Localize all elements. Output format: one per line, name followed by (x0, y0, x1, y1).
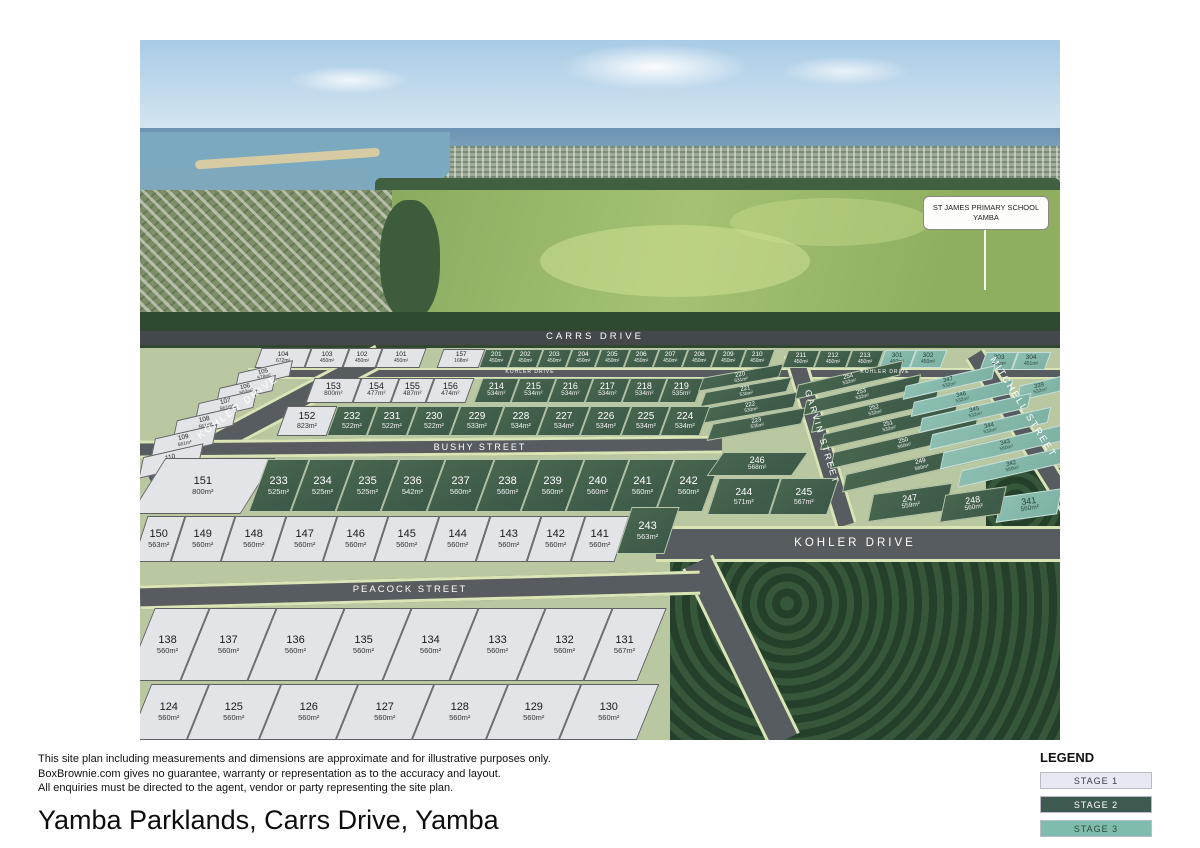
disclaimer-line-3: All enquiries must be directed to the ag… (38, 781, 738, 796)
lot-area: 560m² (898, 443, 912, 451)
lot-number: 236 (402, 476, 423, 488)
lot-area: 560m² (589, 541, 610, 549)
lot-area: 450m² (320, 359, 334, 364)
lot-area: 560m² (678, 487, 699, 495)
lot-number: 135 (353, 635, 374, 647)
school-sign-line1: ST JAMES PRIMARY SCHOOL (933, 203, 1039, 213)
lot-area: 560m² (294, 541, 315, 549)
lot-341: 341560m² (996, 488, 1060, 523)
lot-number: 234 (312, 476, 333, 488)
lot-area: 534m² (635, 392, 653, 399)
lot-number: 227 (554, 412, 574, 423)
lot-area: 522m² (382, 423, 402, 430)
lot-area: 530m² (739, 391, 753, 398)
lot-number: 239 (542, 476, 563, 488)
lot-area: 450m² (605, 359, 619, 364)
lot-area: 534m² (561, 392, 579, 399)
lot-area: 450m² (663, 359, 677, 364)
lot-area: 560m² (345, 541, 366, 549)
lot-number: 232 (342, 412, 362, 423)
lot-243: 243563m² (616, 507, 679, 554)
lot-number: 136 (285, 635, 306, 647)
lot-304: 304451m² (1012, 352, 1052, 370)
lot-area: 522m² (342, 423, 362, 430)
lot-area: 560m² (447, 541, 468, 549)
lot-area: 451m² (1024, 362, 1038, 367)
lot-area: 534m² (636, 423, 656, 430)
lot-area: 823m² (297, 423, 317, 430)
lot-area: 560m² (545, 541, 566, 549)
lot-area: 560m² (374, 714, 395, 722)
lot-area: 532m² (969, 412, 983, 420)
lot-area: 534m² (511, 423, 531, 430)
lot-number: 243 (637, 521, 658, 533)
lot-number: 237 (450, 476, 471, 488)
lot-area: 534m² (598, 392, 616, 399)
lot-number: 229 (467, 412, 487, 423)
lot-area: 567m² (794, 498, 814, 505)
lot-area: 800m² (192, 488, 213, 496)
lot-area: 560m² (223, 714, 244, 722)
lot-area: 450m² (750, 359, 764, 364)
street-label-carrs-drive: CARRS DRIVE (470, 331, 720, 342)
lot-area: 560m² (158, 714, 179, 722)
lot-area: 532m² (956, 397, 970, 405)
lot-area: 450m² (721, 359, 735, 364)
lot-number: 230 (424, 412, 444, 423)
lot-number: 224 (675, 412, 695, 423)
lot-area: 560m² (192, 541, 213, 549)
street-label-bushy-street: BUSHY STREET (395, 442, 565, 452)
lot-area: 525m² (357, 487, 378, 495)
lot-number: 152 (297, 412, 317, 423)
legend-title: LEGEND (1040, 750, 1160, 765)
lot-area: 560m² (487, 646, 508, 654)
lot-area: 560m² (523, 714, 544, 722)
lot-area: 450m² (921, 360, 935, 365)
lot-area: 534m² (524, 392, 542, 399)
lot-area: 450m² (518, 359, 532, 364)
lot-overlay-layer: 104672m²103450m²102450m²101450m²157168m²… (140, 40, 1060, 740)
lot-number: 240 (587, 476, 608, 488)
lot-area: 168m² (454, 359, 468, 364)
lot-area: 450m² (634, 359, 648, 364)
lot-area: 530m² (744, 407, 758, 414)
legend-swatch-3: STAGE 3 (1040, 820, 1152, 837)
lot-area: 560m² (1006, 466, 1020, 474)
lot-156: 156474m² (425, 378, 474, 403)
lot-area: 450m² (394, 359, 408, 364)
lot-area: 560m² (542, 487, 563, 495)
lot-101: 101450m² (375, 348, 426, 368)
lot-number: 231 (382, 412, 402, 423)
lot-246: 246568m² (707, 452, 809, 476)
street-label-kohler-drive-small-1: KOHLER DRIVE (440, 369, 620, 375)
lot-area: 450m² (355, 359, 369, 364)
aerial-site-plan-photo: 104672m²103450m²102450m²101450m²157168m²… (140, 40, 1060, 740)
lot-245: 245567m² (769, 478, 839, 515)
lot-area: 560m² (587, 487, 608, 495)
lot-area: 450m² (794, 360, 808, 365)
sign-pole (984, 228, 986, 290)
lot-area: 534m² (675, 423, 695, 430)
lot-area: 534m² (554, 423, 574, 430)
lot-area: 560m² (1000, 445, 1014, 453)
lot-area: 568m² (748, 465, 766, 472)
lot-area: 450m² (692, 359, 706, 364)
lot-area: 560m² (298, 714, 319, 722)
school-sign-line2: YAMBA (973, 213, 999, 223)
lot-number: 137 (218, 635, 239, 647)
lot-area: 477m² (367, 392, 385, 399)
lot-area: 560m² (396, 541, 417, 549)
legend-swatch-1: STAGE 1 (1040, 772, 1152, 789)
disclaimer-line-1: This site plan including measurements an… (38, 752, 738, 767)
lot-number: 132 (554, 635, 575, 647)
lot-302: 302450m² (910, 350, 948, 368)
street-label-peacock-street: PEACOCK STREET (325, 584, 495, 595)
lot-area: 560m² (632, 487, 653, 495)
lot-area: 532m² (843, 379, 857, 387)
lot-area: 450m² (489, 359, 503, 364)
lot-area: 474m² (441, 392, 459, 399)
page-title: Yamba Parklands, Carrs Drive, Yamba (38, 805, 738, 836)
lot-area: 542m² (402, 487, 423, 495)
lot-area: 450m² (826, 360, 840, 365)
lot-area: 567m² (614, 646, 635, 654)
lot-area: 560m² (498, 541, 519, 549)
lot-area: 535m² (750, 423, 764, 430)
lot-area: 534m² (487, 392, 505, 399)
lot-area: 563m² (148, 541, 169, 549)
lot-area: 534m² (596, 423, 616, 430)
lot-number: 131 (614, 635, 635, 647)
lot-area: 559m² (901, 503, 920, 512)
lot-area: 450m² (858, 360, 872, 365)
lot-area: 535m² (672, 392, 690, 399)
lot-area: 522m² (424, 423, 444, 430)
legend-swatch-2: STAGE 2 (1040, 796, 1152, 813)
legend: LEGEND STAGE 1 STAGE 2 STAGE 3 (1040, 750, 1160, 844)
lot-area: 560m² (243, 541, 264, 549)
lot-area: 560m² (497, 487, 518, 495)
lot-area: 560m² (353, 646, 374, 654)
lot-number: 233 (268, 476, 289, 488)
lot-area: 560m² (285, 646, 306, 654)
lot-number: 134 (420, 635, 441, 647)
lot-number: 235 (357, 476, 378, 488)
lot-area: 533m² (467, 423, 487, 430)
lot-area: 563m² (637, 532, 658, 540)
lot-area: 571m² (734, 498, 754, 505)
lot-area: 800m² (324, 392, 342, 399)
lot-number: 242 (678, 476, 699, 488)
lot-number: 244 (734, 488, 754, 499)
lot-area: 525m² (268, 487, 289, 495)
lot-area: 560m² (1020, 506, 1039, 515)
disclaimer-line-2: BoxBrownie.com gives no guarantee, warra… (38, 767, 738, 782)
lot-157: 157168m² (437, 349, 486, 368)
lot-area: 560m² (964, 505, 983, 514)
school-sign: ST JAMES PRIMARY SCHOOL YAMBA (923, 196, 1049, 230)
lot-area: 450m² (547, 359, 561, 364)
lot-number: 241 (632, 476, 653, 488)
lot-number: 133 (487, 635, 508, 647)
lot-area: 631m² (734, 377, 748, 384)
street-label-kohler-drive-main: KOHLER DRIVE (760, 537, 950, 549)
footer: This site plan including measurements an… (38, 752, 738, 836)
lot-area: 450m² (576, 359, 590, 364)
lot-area: 560m² (450, 487, 471, 495)
lot-area: 560m² (218, 646, 239, 654)
lot-area: 560m² (598, 714, 619, 722)
lot-area: 560m² (554, 646, 575, 654)
lot-number: 238 (497, 476, 518, 488)
street-label-kohler-drive-small-2: KOHLER DRIVE (800, 369, 970, 375)
lot-number: 225 (636, 412, 656, 423)
lot-area: 560m² (157, 646, 178, 654)
lot-area: 560m² (449, 714, 470, 722)
lot-number: 138 (157, 635, 178, 647)
lot-area: 525m² (312, 487, 333, 495)
lot-number: 245 (794, 488, 814, 499)
site-plan-page: 104672m²103450m²102450m²101450m²157168m²… (0, 0, 1200, 848)
lot-area: 532m² (856, 394, 870, 402)
lot-area: 560m² (914, 465, 929, 473)
lot-area: 560m² (420, 646, 441, 654)
lot-number: 228 (511, 412, 531, 423)
lot-area: 487m² (403, 392, 421, 399)
lot-number: 226 (596, 412, 616, 423)
